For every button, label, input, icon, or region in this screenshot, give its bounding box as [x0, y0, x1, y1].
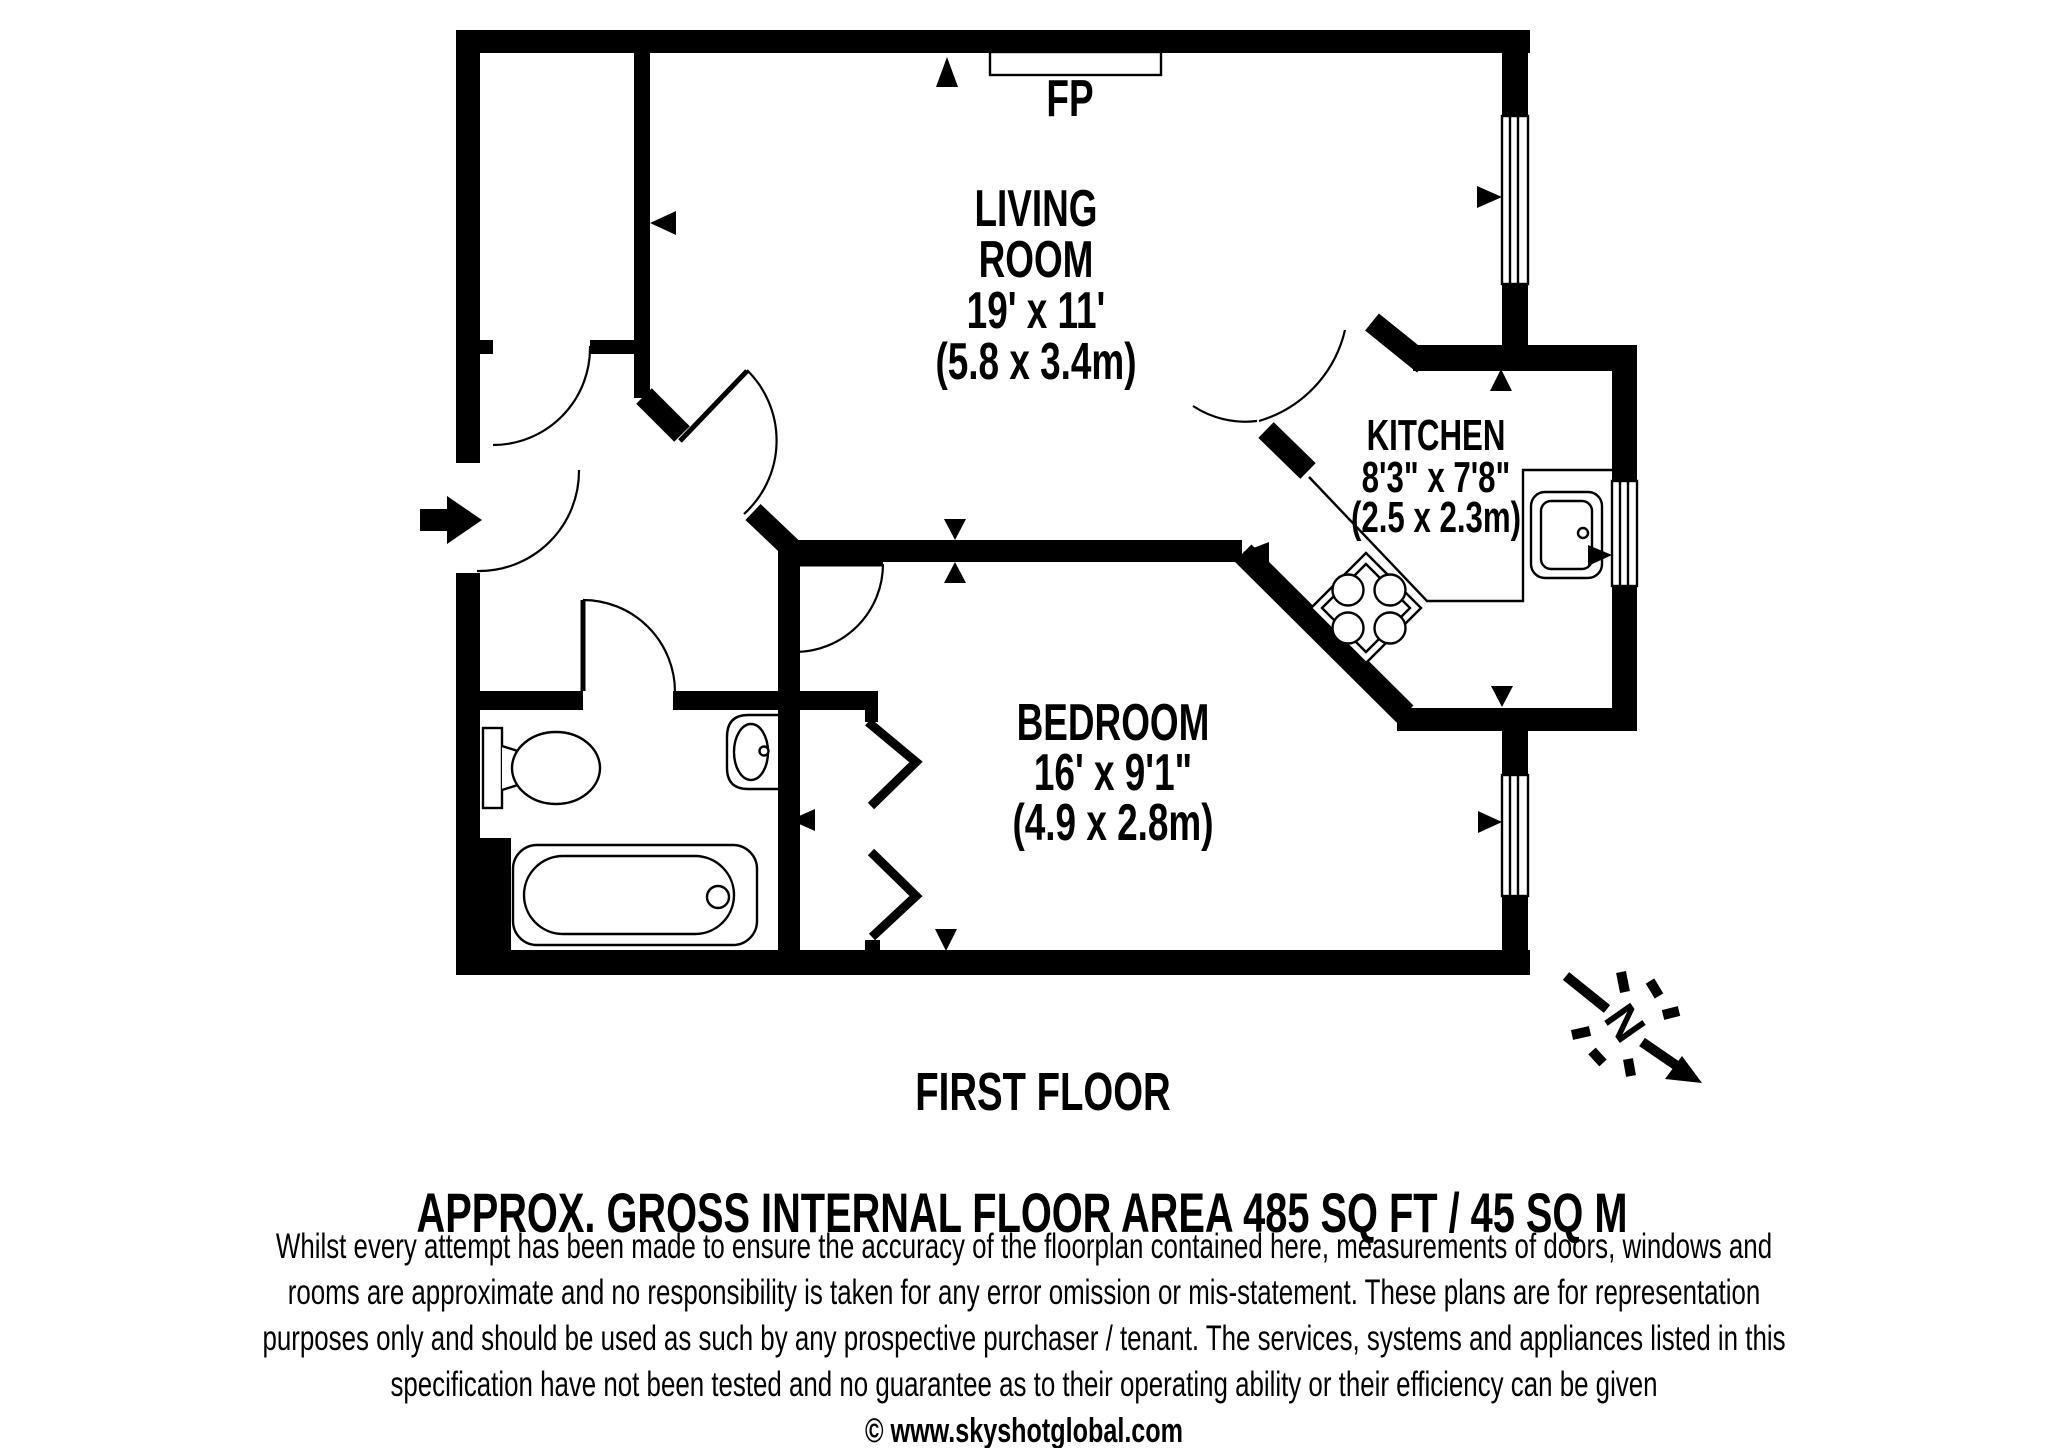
wall-sw-block	[456, 838, 511, 953]
doors	[477, 330, 1345, 692]
floorplan-page: N FP LIVING ROOM 19' x 11' (5.8 x 3.4m) …	[0, 0, 2048, 1448]
kitchen-window	[1612, 481, 1637, 586]
living-room-dims-ft: 19' x 11'	[967, 281, 1106, 340]
wall-left-jamb-stub	[478, 340, 493, 354]
living-room-dims-m: (5.8 x 3.4m)	[935, 332, 1136, 391]
wall-kitchen-right-upper	[1612, 345, 1637, 481]
wall-kitchen-door-jamb	[1372, 322, 1424, 364]
living-room-window	[1502, 116, 1528, 284]
wall-right-bedroom-lower	[1502, 896, 1528, 975]
disclaimer-line: rooms are approximate and no responsibil…	[288, 1272, 1761, 1312]
compass-north-indicator: N	[1566, 972, 1702, 1083]
wall-hall-bedroom	[778, 542, 800, 952]
closet-door-arc	[493, 346, 590, 445]
arrow-left-icon	[650, 211, 676, 235]
living-room-door-arc	[744, 370, 777, 514]
wall-bedroom-door-jamb	[753, 512, 793, 550]
arrow-down-icon	[944, 519, 966, 540]
entry-door-arc	[477, 470, 579, 571]
disclaimer-line: Whilst every attempt has been made to en…	[276, 1226, 1772, 1266]
wall-right-living-upper	[1502, 30, 1528, 116]
wall-top	[456, 30, 1530, 53]
kitchen-sink	[1531, 492, 1602, 578]
wall-left-upper	[456, 30, 480, 463]
arrow-up-icon	[944, 562, 966, 583]
floorplan-drawing: N FP LIVING ROOM 19' x 11' (5.8 x 3.4m) …	[0, 0, 2048, 1448]
wall-living-bedroom	[788, 540, 1242, 562]
living-room-name: LIVING	[974, 179, 1097, 238]
arrow-right-icon	[1478, 811, 1502, 833]
kitchen-door-arc-small	[1193, 406, 1257, 422]
kitchen-dims-m: (2.5 x 2.3m)	[1351, 493, 1521, 543]
wall-right-living-lower	[1502, 284, 1528, 347]
wall-hall-closet	[634, 30, 650, 398]
wall-living-door-jamb	[644, 396, 682, 434]
arrow-down-icon	[1491, 686, 1513, 707]
arrow-down-icon	[935, 929, 957, 951]
bathroom-sink	[727, 715, 778, 789]
footer: APPROX. GROSS INTERNAL FLOOR AREA 485 SQ…	[262, 1182, 1785, 1448]
wall-bottom	[456, 950, 1530, 975]
bedroom-label: BEDROOM 16' x 9'1" (4.9 x 2.8m)	[1012, 693, 1213, 852]
wall-right-bedroom-upper	[1502, 708, 1528, 775]
wall-kitchen-door-leaf	[1266, 430, 1308, 471]
bedroom-dims-m: (4.9 x 2.8m)	[1012, 793, 1213, 852]
bedroom-window	[1502, 775, 1528, 896]
disclaimer-line: specification have not been tested and n…	[390, 1364, 1657, 1404]
wall-kitchen-top	[1413, 345, 1637, 371]
kitchen-label: KITCHEN 8'3" x 7'8" (2.5 x 2.3m)	[1351, 411, 1521, 543]
bedroom-closet-doors	[868, 722, 916, 937]
compass-arrow-shaft	[1642, 1042, 1680, 1068]
bedroom-door-arc	[795, 564, 883, 652]
bathtub	[513, 845, 757, 945]
living-room-name2: ROOM	[979, 230, 1094, 289]
closet-bifold-icon	[871, 852, 916, 937]
toilet	[483, 728, 600, 808]
kitchen-door-arc	[1259, 330, 1345, 421]
wall-closet-stub-bottom	[865, 940, 880, 952]
arrow-right-icon	[1477, 186, 1502, 208]
bathroom-door-arc	[583, 600, 675, 692]
living-room-label: LIVING ROOM 19' x 11' (5.8 x 3.4m)	[935, 179, 1136, 391]
arrow-up-icon	[1490, 369, 1512, 391]
disclaimer-line: purposes only and should be used as such…	[262, 1318, 1785, 1358]
wall-bathroom-top-left	[480, 691, 583, 710]
arrow-up-icon	[936, 57, 958, 87]
floor-title: FIRST FLOOR	[915, 1062, 1170, 1122]
closet-bifold-icon	[868, 722, 916, 806]
copyright-line: © www.skyshotglobal.com	[865, 1412, 1183, 1448]
entry-arrow-icon	[420, 496, 482, 544]
living-room-door-leaf	[680, 371, 747, 441]
wall-closet-jamb	[590, 340, 636, 354]
fireplace-label: FP	[1046, 69, 1093, 128]
wall-bathroom-top-right	[673, 691, 878, 710]
